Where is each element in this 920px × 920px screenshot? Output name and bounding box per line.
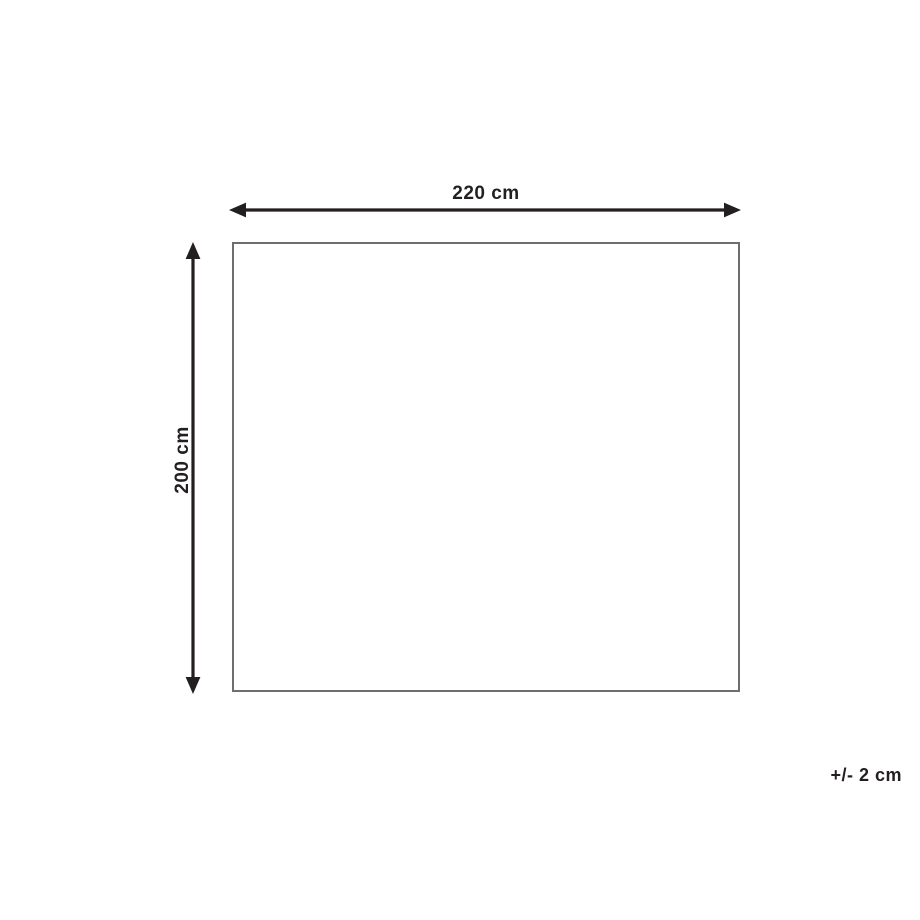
tolerance-label: +/- 2 cm [830,765,902,786]
arrowhead-up-icon [186,242,201,259]
arrowhead-down-icon [186,677,201,694]
dimension-diagram: 220 cm 200 cm +/- 2 cm [0,0,920,920]
product-outline-rect [232,242,740,692]
width-dimension-label: 220 cm [232,183,740,205]
height-dimension-label: 200 cm [172,426,194,493]
